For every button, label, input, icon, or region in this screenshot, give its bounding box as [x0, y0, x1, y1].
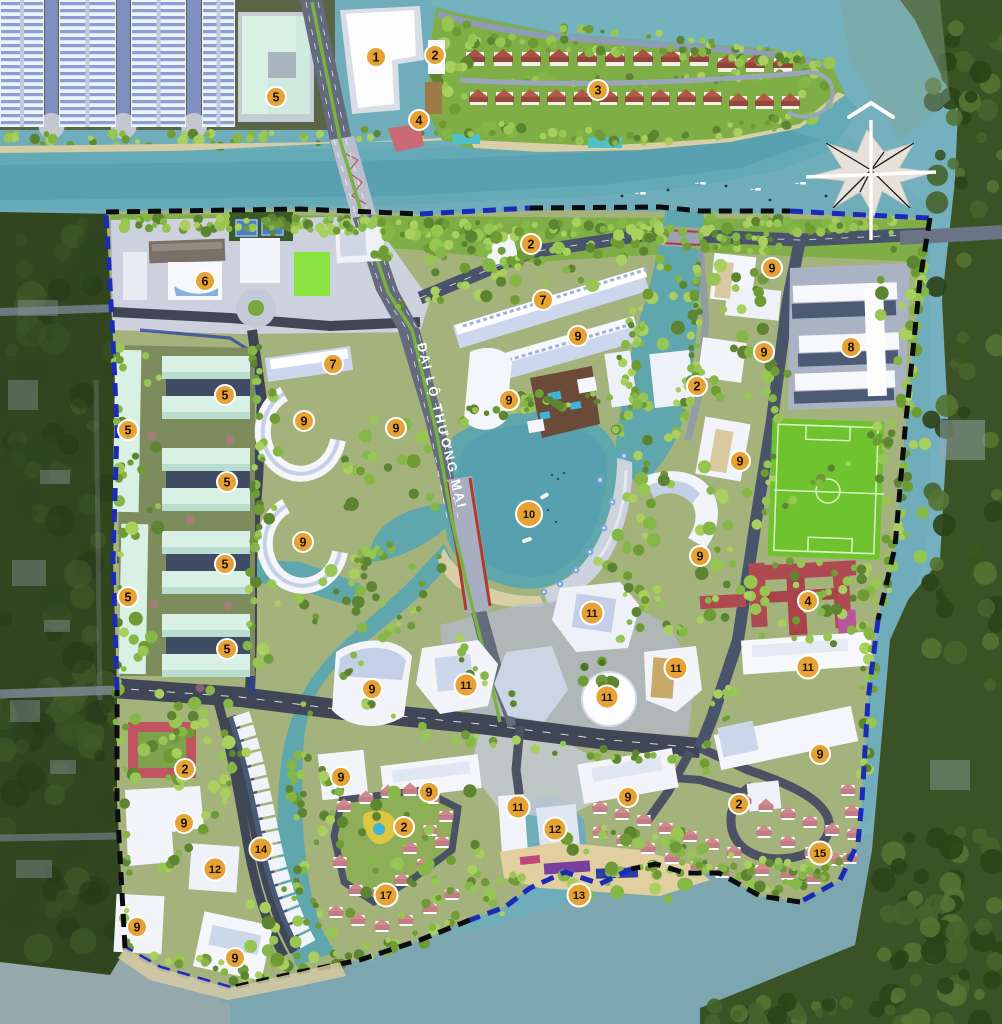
svg-text:15: 15: [814, 848, 826, 860]
svg-text:5: 5: [273, 91, 280, 105]
svg-text:9: 9: [338, 771, 345, 785]
svg-text:10: 10: [523, 509, 535, 521]
svg-text:12: 12: [549, 824, 561, 836]
svg-text:8: 8: [848, 341, 855, 355]
svg-text:9: 9: [737, 455, 744, 469]
svg-text:11: 11: [601, 692, 613, 704]
svg-text:9: 9: [697, 550, 704, 564]
svg-text:9: 9: [625, 791, 632, 805]
svg-text:12: 12: [209, 864, 221, 876]
svg-text:6: 6: [202, 275, 209, 289]
svg-text:9: 9: [301, 415, 308, 429]
svg-text:13: 13: [573, 890, 585, 902]
svg-text:9: 9: [232, 952, 239, 966]
svg-text:5: 5: [224, 643, 231, 657]
svg-text:11: 11: [460, 680, 472, 692]
svg-text:11: 11: [512, 802, 524, 814]
svg-text:9: 9: [769, 262, 776, 276]
svg-text:2: 2: [694, 380, 701, 394]
svg-text:9: 9: [393, 422, 400, 436]
svg-text:11: 11: [802, 662, 814, 674]
svg-text:9: 9: [369, 683, 376, 697]
svg-text:7: 7: [540, 294, 547, 308]
svg-text:7: 7: [330, 358, 337, 372]
svg-text:3: 3: [595, 84, 602, 98]
svg-text:9: 9: [506, 394, 513, 408]
svg-text:5: 5: [222, 389, 229, 403]
svg-text:4: 4: [805, 595, 812, 609]
svg-text:9: 9: [426, 786, 433, 800]
svg-text:4: 4: [416, 114, 423, 128]
svg-text:5: 5: [224, 476, 231, 490]
svg-text:9: 9: [134, 921, 141, 935]
svg-text:9: 9: [181, 817, 188, 831]
svg-text:11: 11: [586, 608, 598, 620]
svg-text:5: 5: [125, 591, 132, 605]
svg-text:9: 9: [817, 748, 824, 762]
svg-text:9: 9: [575, 330, 582, 344]
svg-text:2: 2: [182, 763, 189, 777]
svg-text:17: 17: [380, 890, 392, 902]
svg-text:2: 2: [432, 49, 439, 63]
svg-text:9: 9: [300, 536, 307, 550]
svg-text:11: 11: [670, 663, 682, 675]
svg-text:5: 5: [222, 558, 229, 572]
svg-text:14: 14: [255, 844, 268, 856]
svg-text:9: 9: [761, 346, 768, 360]
svg-text:2: 2: [401, 821, 408, 835]
svg-text:2: 2: [736, 798, 743, 812]
svg-text:2: 2: [528, 238, 535, 252]
svg-text:1: 1: [373, 51, 380, 65]
svg-text:5: 5: [125, 424, 132, 438]
